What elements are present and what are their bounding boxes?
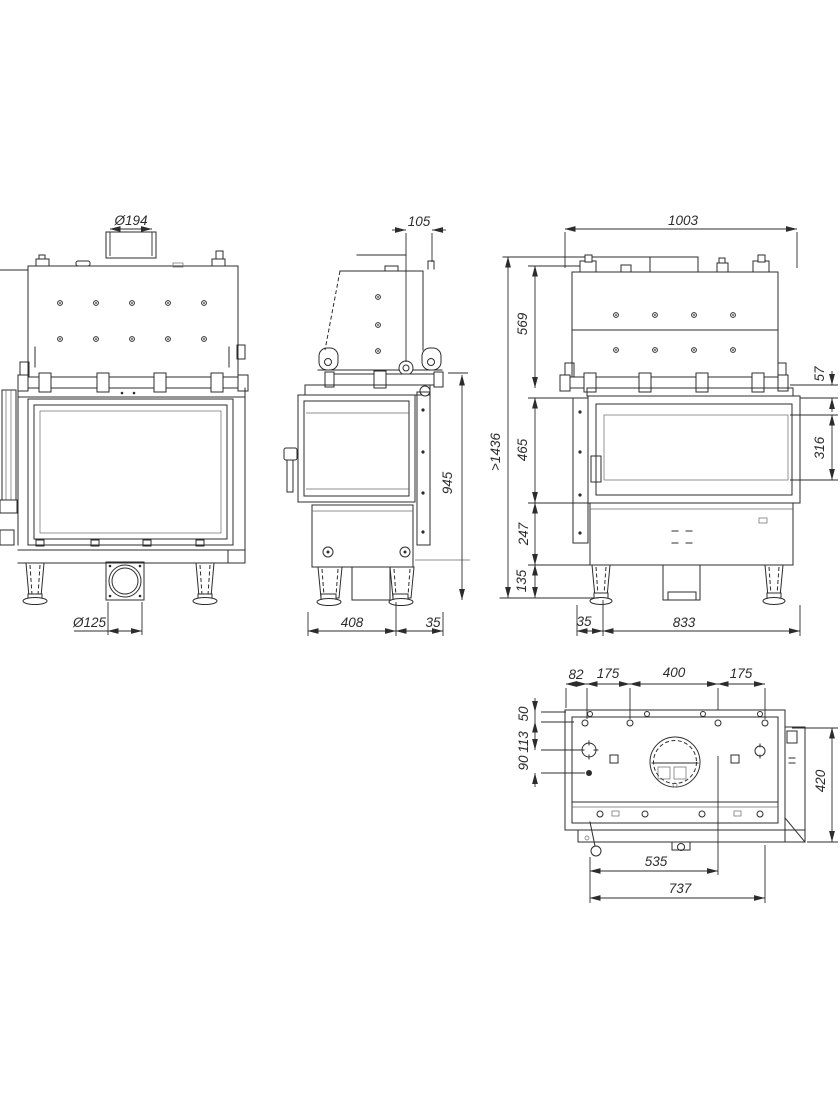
plan-flue-opening (650, 737, 700, 787)
dim-rear-frame-height: 57 (812, 366, 827, 382)
front-mounting-rail (18, 373, 248, 392)
plan-bottom-holes (597, 811, 763, 817)
rear-view: 1003 >1436 569 465 247 135 57 (488, 213, 838, 636)
side-dim-height: 945 (440, 373, 468, 600)
plan-dim-left-chain: 50 113 90 (516, 698, 585, 787)
dim-side-height: 945 (440, 471, 455, 494)
technical-drawing: Ø194 Ø125 (0, 0, 840, 1120)
dim-plan-pitch-center: 400 (663, 665, 686, 680)
plan-view: 82 175 400 175 50 113 90 420 (516, 665, 838, 903)
front-side-glass-edge (0, 390, 17, 545)
rear-side-frame-strip (573, 398, 588, 543)
side-base (312, 505, 470, 567)
dim-side-base-depth: 408 (341, 615, 364, 630)
rear-dim-bottom: 35 833 (576, 600, 800, 636)
dim-plan-inset-top: 50 (516, 706, 531, 722)
front-flue-collar (106, 232, 156, 258)
dim-plan-flue-offset: 535 (645, 854, 668, 869)
front-view: Ø194 Ø125 (0, 213, 248, 635)
plan-pivot-point (586, 770, 592, 776)
dim-side-rear-offset: 35 (425, 615, 441, 630)
dim-side-flue-offset: 105 (408, 214, 431, 229)
dim-plan-pitch-left: 175 (597, 666, 620, 681)
dim-front-flue-diameter: Ø194 (113, 213, 147, 228)
dim-front-outlet-diameter: Ø125 (72, 615, 107, 630)
dim-rear-hood-height: 569 (515, 312, 530, 335)
front-hood (28, 266, 238, 377)
side-door (298, 395, 415, 502)
plan-dim-top-chain: 82 175 400 175 (566, 665, 765, 719)
rear-dim-total-height: >1436 (488, 257, 508, 598)
dim-rear-overall-width: 1003 (668, 213, 699, 228)
rear-dim-left-chain: 569 465 247 135 (514, 266, 592, 598)
plan-lever (585, 822, 601, 856)
dim-rear-firebox-height: 465 (515, 438, 530, 461)
plan-side-holes (580, 741, 765, 776)
side-hood (318, 261, 442, 375)
front-door (28, 399, 233, 545)
side-door-handle (284, 448, 297, 492)
dim-plan-base-width: 737 (669, 881, 692, 896)
dim-plan-pitch-right: 175 (730, 666, 753, 681)
rear-dim-right-chain: 57 316 (790, 366, 838, 480)
dim-plan-body-depth: 420 (813, 769, 828, 792)
rear-door (588, 396, 800, 503)
plan-top-holes (582, 712, 768, 727)
rear-mounting-rail (560, 373, 788, 392)
plan-dim-depth: 420 (792, 728, 838, 842)
plan-frame-plate (578, 727, 805, 851)
dim-rear-total-height: >1436 (488, 433, 503, 471)
dim-plan-edge-offset: 82 (568, 667, 584, 682)
dim-rear-side-offset: 35 (576, 614, 592, 629)
dim-plan-inset-middle: 113 (516, 731, 531, 753)
rear-base (590, 503, 793, 565)
rear-legs (590, 565, 785, 605)
front-dim-outlet: Ø125 (72, 602, 142, 635)
dim-rear-leg-height: 135 (514, 569, 529, 592)
side-back-channel (417, 392, 430, 545)
rear-top-protrusion (650, 257, 698, 272)
dim-rear-base-height: 247 (516, 522, 531, 546)
side-legs (317, 567, 414, 606)
drawing-page: Ø194 Ø125 (0, 0, 840, 1120)
side-view: 105 945 408 35 (284, 214, 470, 636)
front-dim-flue-top: Ø194 (110, 213, 152, 256)
front-hood-rivets (58, 301, 207, 342)
front-air-outlet (106, 562, 144, 600)
rear-hood (565, 255, 786, 377)
side-dim-depth: 408 35 (308, 602, 443, 636)
dim-plan-inset-bottom: 90 (516, 755, 531, 771)
dim-rear-leg-span: 833 (673, 615, 696, 630)
dim-rear-glass-height: 316 (812, 436, 827, 459)
side-dim-flue-offset: 105 (392, 214, 446, 362)
